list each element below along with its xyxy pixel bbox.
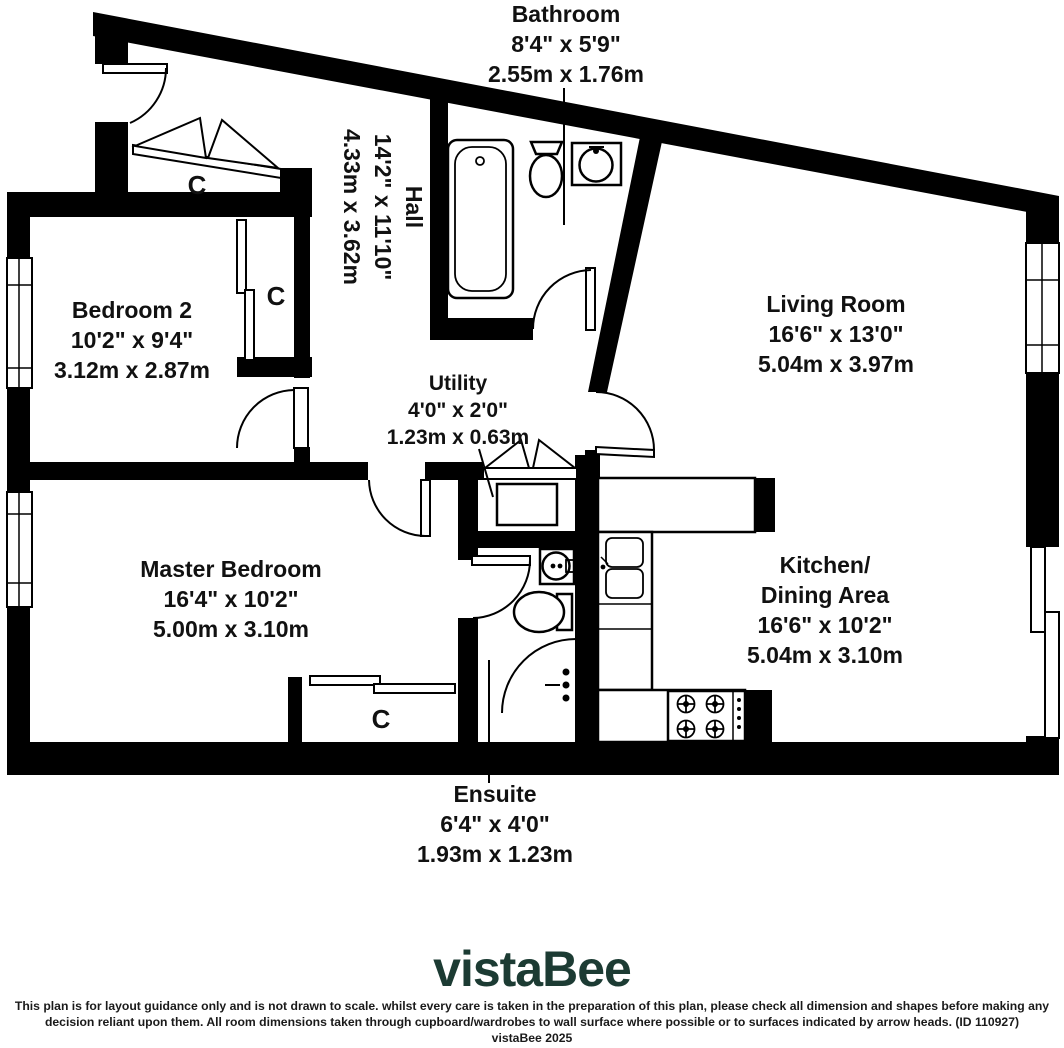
living-name: Living Room bbox=[766, 291, 905, 317]
bathroom-imperial: 8'4" x 5'9" bbox=[511, 31, 621, 57]
utility-appliance-icon bbox=[497, 484, 557, 525]
bathtub-icon bbox=[448, 140, 513, 298]
master-metric: 5.00m x 3.10m bbox=[153, 616, 309, 642]
master-imperial: 16'4" x 10'2" bbox=[163, 586, 298, 612]
disclaimer-line-1: This plan is for layout guidance only an… bbox=[15, 999, 1049, 1013]
living-imperial: 16'6" x 13'0" bbox=[768, 321, 903, 347]
wall-hall-left-lower bbox=[95, 122, 128, 217]
utility-name: Utility bbox=[429, 372, 488, 395]
utility-label: Utility 4'0" x 2'0" 1.23m x 0.63m bbox=[387, 372, 529, 449]
closet-label-hall: C bbox=[188, 170, 207, 200]
utility-imperial: 4'0" x 2'0" bbox=[408, 399, 508, 422]
master-closet-sliding-doors bbox=[310, 676, 455, 693]
wall-ensuite-east bbox=[575, 455, 598, 742]
vistabee-logo: vistaBee bbox=[433, 941, 631, 997]
ensuite-label: Ensuite 6'4" x 4'0" 1.93m x 1.23m bbox=[417, 781, 573, 867]
floorplan-svg: Bathroom 8'4" x 5'9" 2.55m x 1.76m Hall … bbox=[0, 0, 1064, 1048]
wall-bathroom-left bbox=[430, 95, 448, 340]
window-master-bedroom bbox=[7, 492, 32, 607]
hall-closet-bifold bbox=[133, 118, 281, 178]
bathroom-name: Bathroom bbox=[512, 1, 621, 27]
bathroom-label: Bathroom 8'4" x 5'9" 2.55m x 1.76m bbox=[488, 1, 644, 87]
window-living-room bbox=[1026, 243, 1059, 373]
bedroom2-door bbox=[237, 388, 308, 448]
kitchen-metric: 5.04m x 3.10m bbox=[747, 642, 903, 668]
wall-bottom bbox=[7, 742, 1059, 775]
ensuite-toilet-icon bbox=[514, 592, 572, 632]
hall-name: Hall bbox=[401, 186, 427, 228]
kitchen-imperial: 16'6" x 10'2" bbox=[757, 612, 892, 638]
bathroom-toilet-icon bbox=[530, 142, 562, 197]
master-bedroom-label: Master Bedroom 16'4" x 10'2" 5.00m x 3.1… bbox=[140, 556, 321, 642]
ensuite-name: Ensuite bbox=[453, 781, 536, 807]
wall-master-closet-stub bbox=[288, 677, 302, 742]
disclaimer-line-2: decision reliant upon them. All room dim… bbox=[45, 1015, 1019, 1029]
shower-icon bbox=[502, 639, 576, 713]
hall-imperial: 14'2" x 11'10" bbox=[370, 134, 396, 281]
living-metric: 5.04m x 3.97m bbox=[758, 351, 914, 377]
wall-bedrooms-divider bbox=[7, 462, 368, 480]
ensuite-metric: 1.93m x 1.23m bbox=[417, 841, 573, 867]
utility-metric: 1.23m x 0.63m bbox=[387, 426, 529, 449]
wall-hall-left-upper bbox=[95, 26, 128, 64]
closet-label-bedroom2: C bbox=[267, 281, 286, 311]
hob-icon bbox=[668, 691, 745, 741]
living-room-door bbox=[596, 392, 654, 457]
kitchen-name2: Dining Area bbox=[761, 582, 889, 608]
bedroom2-imperial: 10'2" x 9'4" bbox=[71, 327, 193, 353]
wall-right-2 bbox=[1026, 373, 1059, 547]
window-bedroom2 bbox=[7, 258, 32, 388]
wall-counter-stub bbox=[745, 690, 772, 742]
bedroom2-name: Bedroom 2 bbox=[72, 297, 192, 323]
hall-label: Hall 14'2" x 11'10" 4.33m x 3.62m bbox=[339, 129, 427, 285]
master-name: Master Bedroom bbox=[140, 556, 321, 582]
patio-sliding-door bbox=[1031, 547, 1059, 738]
bedroom2-metric: 3.12m x 2.87m bbox=[54, 357, 210, 383]
kitchen-label: Kitchen/ Dining Area 16'6" x 10'2" 5.04m… bbox=[747, 552, 903, 668]
ensuite-sink-icon bbox=[540, 549, 574, 584]
hall-metric: 4.33m x 3.62m bbox=[339, 129, 365, 285]
wall-bedroom2-top bbox=[7, 192, 312, 217]
wall-right-1 bbox=[1026, 196, 1059, 243]
wall-closet-stub bbox=[280, 168, 312, 196]
disclaimer-line-3: vistaBee 2025 bbox=[492, 1031, 573, 1045]
wall-bathroom-bottom bbox=[430, 318, 533, 340]
wall-left-3 bbox=[7, 607, 30, 742]
kitchen-name: Kitchen/ bbox=[780, 552, 871, 578]
bathroom-door bbox=[533, 268, 595, 330]
bathroom-sink-icon bbox=[572, 143, 621, 185]
entrance-door bbox=[103, 64, 167, 123]
floorplan-page: Bathroom 8'4" x 5'9" 2.55m x 1.76m Hall … bbox=[0, 0, 1064, 1048]
wall-ensuite-west-lower bbox=[458, 618, 478, 742]
wall-bedroom2-right bbox=[294, 217, 310, 378]
wall-peninsula-stub bbox=[755, 478, 775, 532]
footer: vistaBee This plan is for layout guidanc… bbox=[15, 941, 1049, 1045]
master-bedroom-door bbox=[369, 480, 430, 536]
ensuite-imperial: 6'4" x 4'0" bbox=[440, 811, 550, 837]
closet-label-master: C bbox=[372, 704, 391, 734]
living-room-label: Living Room 16'6" x 13'0" 5.04m x 3.97m bbox=[758, 291, 914, 377]
bedroom2-label: Bedroom 2 10'2" x 9'4" 3.12m x 2.87m bbox=[54, 297, 210, 383]
bathroom-metric: 2.55m x 1.76m bbox=[488, 61, 644, 87]
bedroom2-closet-sliding-doors bbox=[237, 220, 254, 360]
